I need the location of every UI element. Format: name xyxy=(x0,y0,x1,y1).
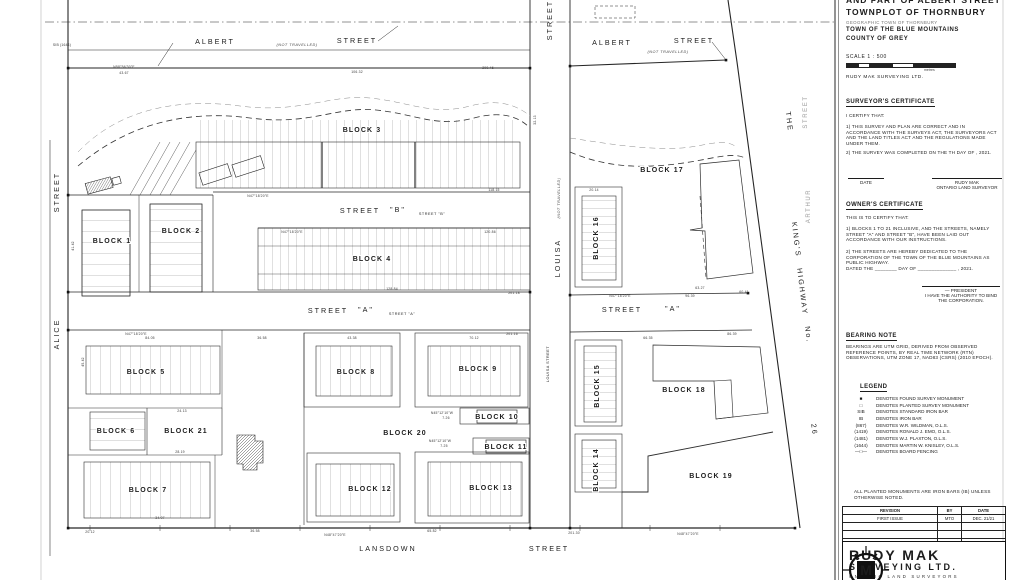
legend-symbol: (867) xyxy=(850,423,872,430)
block-outlines xyxy=(68,120,773,528)
firm-name: RUDY MAK SURVEYING LTD. xyxy=(846,75,924,80)
dimension-label: N47°18'20"E xyxy=(281,230,303,234)
authority-statement: I HAVE THE AUTHORITY TO BIND THE CORPORA… xyxy=(922,293,1000,303)
bearing-note-text: BEARINGS ARE UTM GRID, DERIVED FROM OBSE… xyxy=(846,344,998,361)
street-label: "A" xyxy=(665,304,681,313)
dimension-label: 128.84 xyxy=(386,287,398,291)
legend-text: DENOTES FOUND SURVEY MONUMENT xyxy=(876,396,964,403)
compass-logo-icon: M xyxy=(843,542,889,580)
street-label: STREET xyxy=(340,206,380,215)
revision-cell xyxy=(843,523,937,530)
dimension-label: 201.30 xyxy=(568,531,580,535)
block-label: BLOCK 14 xyxy=(593,448,600,491)
street-label: "B" xyxy=(390,205,406,214)
dimension-label: N45°12'10"W xyxy=(431,411,454,415)
dimension-label: 60.41 xyxy=(739,290,749,294)
legend-symbol: SIB xyxy=(850,409,872,416)
street-label: ARTHUR xyxy=(806,189,812,224)
surveyors-certificate-clause1: 1) THIS SURVEY AND PLAN ARE CORRECT AND … xyxy=(846,124,998,147)
block-label: BLOCK 2 xyxy=(162,228,200,235)
dimension-label: 34.07 xyxy=(155,516,165,520)
legend-item: IBDENOTES IRON BAR xyxy=(850,416,1008,423)
plan-subtitle: GEOGRAPHIC TOWN OF THORNBURY xyxy=(846,20,938,25)
revision-cell xyxy=(937,523,961,530)
dimension-label: N48°47'20"E xyxy=(324,533,346,537)
block-label: BLOCK 9 xyxy=(459,366,497,373)
revision-cell xyxy=(961,523,1005,530)
street-label: LOUISA STREET xyxy=(546,346,550,382)
logo-monogram: M xyxy=(860,562,872,578)
dimension-label: 201.16 xyxy=(506,332,518,336)
plan-supertitle: AND PART OF ALBERT STREET xyxy=(846,0,1001,5)
revision-cell: MTO xyxy=(937,515,961,522)
street-label: STREET "B" xyxy=(419,212,445,216)
survey-plan-sheet: ALBERT(NOT TRAVELLED)STREETALBERT(NOT TR… xyxy=(0,0,1024,580)
dimension-label: 20.14 xyxy=(589,188,599,192)
street-label: ALBERT xyxy=(592,38,632,47)
revision-cell xyxy=(843,531,937,538)
plan-title: TOWNPLOT OF THORNBURY xyxy=(846,7,986,17)
block-label: BLOCK 17 xyxy=(640,167,683,174)
street-label: (NOT TRAVELLED) xyxy=(647,50,688,54)
dimension-label: 36.58 xyxy=(250,529,260,533)
block-label: BLOCK 12 xyxy=(348,486,391,493)
block-label: BLOCK 20 xyxy=(383,430,426,437)
legend-symbol: (1644) xyxy=(850,443,872,450)
owners-certificate-dated: DATED THE ________ DAY OF ______________… xyxy=(846,266,998,272)
legend-text: DENOTES STANDARD IRON BAR xyxy=(876,409,948,416)
block-label: BLOCK 10 xyxy=(475,414,518,421)
dimension-label: SIB (1644) xyxy=(53,43,71,47)
title-panel: AND PART OF ALBERT STREET TOWNPLOT OF TH… xyxy=(836,0,1024,580)
dimension-label: 96.39 xyxy=(685,294,695,298)
street-label: THE xyxy=(784,111,795,132)
dimension-label: 7.25 xyxy=(440,444,447,448)
date-signature-line: DATE xyxy=(848,178,884,185)
legend-symbol: ■ xyxy=(850,396,872,403)
firm-logo-box: M RUDY MAK SURVEYING LTD. ONTARIO LAND S… xyxy=(842,541,1006,580)
street-label: STREET xyxy=(602,305,642,314)
street-label: 26 xyxy=(809,423,819,436)
dimension-label: 201.18 xyxy=(508,291,520,295)
street-label: KING'S xyxy=(790,221,803,258)
block-label: BLOCK 8 xyxy=(337,369,375,376)
dimension-label: 106.32 xyxy=(351,70,363,74)
dimension-label: 63.27 xyxy=(695,286,705,290)
bearing-note-heading: BEARING NOTE xyxy=(846,333,897,341)
legend-item: (867)DENOTES W.R. WILDMAN, O.L.S. xyxy=(850,423,1008,430)
revision-cell: FIRST ISSUE xyxy=(843,515,937,522)
legend-text: DENOTES IRON BAR xyxy=(876,416,922,423)
dimension-label: 43.67 xyxy=(119,71,129,75)
revision-cell: BY xyxy=(937,507,961,514)
legend-text: DENOTES MARTIN W. KNISLEY, O.L.S. xyxy=(876,443,959,450)
dimension-label: 7.26 xyxy=(442,416,449,420)
block-label: BLOCK 11 xyxy=(484,444,527,451)
legend-text: DENOTES RONALD J. EMO, O.L.S. xyxy=(876,429,951,436)
surveyor-signature-line: RUDY MAK ONTARIO LAND SURVEYOR xyxy=(932,178,1002,190)
street-label: (NOT TRAVELLED) xyxy=(557,177,561,218)
block-label: BLOCK 1 xyxy=(93,238,131,245)
dimension-label: 41.42 xyxy=(71,241,75,251)
legend-text: DENOTES W.J. PLAXTON, O.L.S. xyxy=(876,436,947,443)
block-label: BLOCK 7 xyxy=(129,487,167,494)
street-label: ALBERT xyxy=(195,37,235,46)
revision-row xyxy=(843,522,1005,530)
revision-row: FIRST ISSUEMTODEC. 21/21 xyxy=(843,514,1005,522)
legend-item: ■DENOTES FOUND SURVEY MONUMENT xyxy=(850,396,1008,403)
dimension-label: N45°12'10"W xyxy=(429,439,452,443)
dimension-label: 45.42 xyxy=(81,357,85,367)
dimension-label: 66.35 xyxy=(643,336,653,340)
dimension-label: N47°18'20"E xyxy=(247,194,269,198)
dimension-label: 200.46 xyxy=(482,66,494,70)
block-label: BLOCK 3 xyxy=(343,127,381,134)
legend-item: SIBDENOTES STANDARD IRON BAR xyxy=(850,409,1008,416)
legend-symbol: □ xyxy=(850,403,872,410)
block-label: BLOCK 18 xyxy=(662,387,705,394)
legend-symbol: IB xyxy=(850,416,872,423)
scale-label: SCALE 1 : 500 xyxy=(846,54,887,60)
owners-certificate-heading: OWNER'S CERTIFICATE xyxy=(846,202,923,210)
scale-bar xyxy=(846,63,956,68)
revision-cell: DEC. 21/21 xyxy=(961,515,1005,522)
legend-symbol: (1481) xyxy=(850,436,872,443)
dimension-label: N48°47'20"E xyxy=(677,532,699,536)
block-label: BLOCK 15 xyxy=(594,364,601,407)
dimension-label: 65.82 xyxy=(427,529,437,533)
revision-cell xyxy=(961,531,1005,538)
owners-certificate-clause2: 2) THE STREETS ARE HEREBY DEDICATED TO T… xyxy=(846,249,998,266)
dimension-label: 28.19 xyxy=(175,450,185,454)
street-label: STREET xyxy=(529,544,569,553)
revision-cell: REVISION xyxy=(843,507,937,514)
municipality: TOWN OF THE BLUE MOUNTAINS xyxy=(846,27,959,33)
dimension-label: 20.12 xyxy=(85,530,95,534)
street-label: STREET xyxy=(545,0,554,40)
revision-header-row: REVISIONBYDATE xyxy=(843,507,1005,514)
street-label: STREET "A" xyxy=(389,312,415,316)
surveyors-certificate-intro: I CERTIFY THAT: xyxy=(846,113,998,119)
dimension-label: 70.12 xyxy=(469,336,479,340)
scale-units: metres xyxy=(924,68,935,72)
legend-item: (1481)DENOTES W.J. PLAXTON, O.L.S. xyxy=(850,436,1008,443)
legend-list: ■DENOTES FOUND SURVEY MONUMENT□DENOTES P… xyxy=(850,396,1008,456)
street-label: ALICE xyxy=(52,319,61,350)
legend-item: (1644)DENOTES MARTIN W. KNISLEY, O.L.S. xyxy=(850,443,1008,450)
legend-heading: LEGEND xyxy=(860,384,887,392)
street-label: STREET xyxy=(674,36,714,45)
surveyor-title: ONTARIO LAND SURVEYOR xyxy=(932,185,1002,190)
street-label: No. xyxy=(803,326,814,344)
dimension-label: 86.39 xyxy=(727,332,737,336)
street-label: HIGHWAY xyxy=(795,268,810,316)
block-label: BLOCK 4 xyxy=(353,256,391,263)
revision-row xyxy=(843,530,1005,538)
legend-text: DENOTES BOARD FENCING xyxy=(876,449,938,456)
dimension-label: 32.13 xyxy=(533,115,537,125)
owners-certificate-clause1: 1) BLOCKS 1 TO 21 INCLUSIVE, AND THE STR… xyxy=(846,226,998,243)
block-label: BLOCK 19 xyxy=(689,473,732,480)
owners-certificate-intro: THIS IS TO CERTIFY THAT: xyxy=(846,215,998,221)
revision-cell xyxy=(937,531,961,538)
legend-item: □DENOTES PLANTED SURVEY MONUMENT xyxy=(850,403,1008,410)
monument-note: ALL PLANTED MONUMENTS ARE IRON BARS (IB)… xyxy=(854,489,1006,500)
legend-item: —□—DENOTES BOARD FENCING xyxy=(850,449,1008,456)
dimension-label: 84.05 xyxy=(145,336,155,340)
legend-text: DENOTES PLANTED SURVEY MONUMENT xyxy=(876,403,969,410)
dimension-label: N58°56'30"E xyxy=(113,65,135,69)
block-label: BLOCK 21 xyxy=(164,428,207,435)
dimension-label: 120.86 xyxy=(484,230,496,234)
surveyors-certificate-heading: SURVEYOR'S CERTIFICATE xyxy=(846,99,935,107)
street-label: STREET xyxy=(337,36,377,45)
surveyors-certificate-clause2: 2) THE SURVEY WAS COMPLETED ON THE TH DA… xyxy=(846,150,998,156)
street-label: LOUISA xyxy=(553,239,562,277)
legend-text: DENOTES W.R. WILDMAN, O.L.S. xyxy=(876,423,948,430)
block-label: BLOCK 16 xyxy=(593,216,600,259)
street-label: "A" xyxy=(358,305,374,314)
president-signature-line: — PRESIDENT I HAVE THE AUTHORITY TO BIND… xyxy=(922,286,1000,303)
legend-symbol: (1419) xyxy=(850,429,872,436)
street-label: LANSDOWN xyxy=(359,544,417,553)
street-label: STREET xyxy=(52,172,61,212)
legend-symbol: —□— xyxy=(850,449,872,456)
dimension-label: 118.15 xyxy=(488,188,499,192)
block-label: BLOCK 6 xyxy=(97,428,135,435)
dimension-label: 24.13 xyxy=(177,409,187,413)
street-label: STREET xyxy=(803,95,809,128)
dimension-label: N47°18'20"E xyxy=(609,294,631,298)
dimension-label: 43.38 xyxy=(347,336,357,340)
block-label: BLOCK 13 xyxy=(469,485,512,492)
legend-item: (1419)DENOTES RONALD J. EMO, O.L.S. xyxy=(850,429,1008,436)
county: COUNTY OF GREY xyxy=(846,36,908,42)
dimension-label: N47°18'20"E xyxy=(125,332,147,336)
revision-cell: DATE xyxy=(961,507,1005,514)
block-label: BLOCK 5 xyxy=(127,369,165,376)
street-label: (NOT TRAVELLED) xyxy=(276,43,317,47)
dimension-label: 36.58 xyxy=(257,336,267,340)
street-label: STREET xyxy=(308,306,348,315)
